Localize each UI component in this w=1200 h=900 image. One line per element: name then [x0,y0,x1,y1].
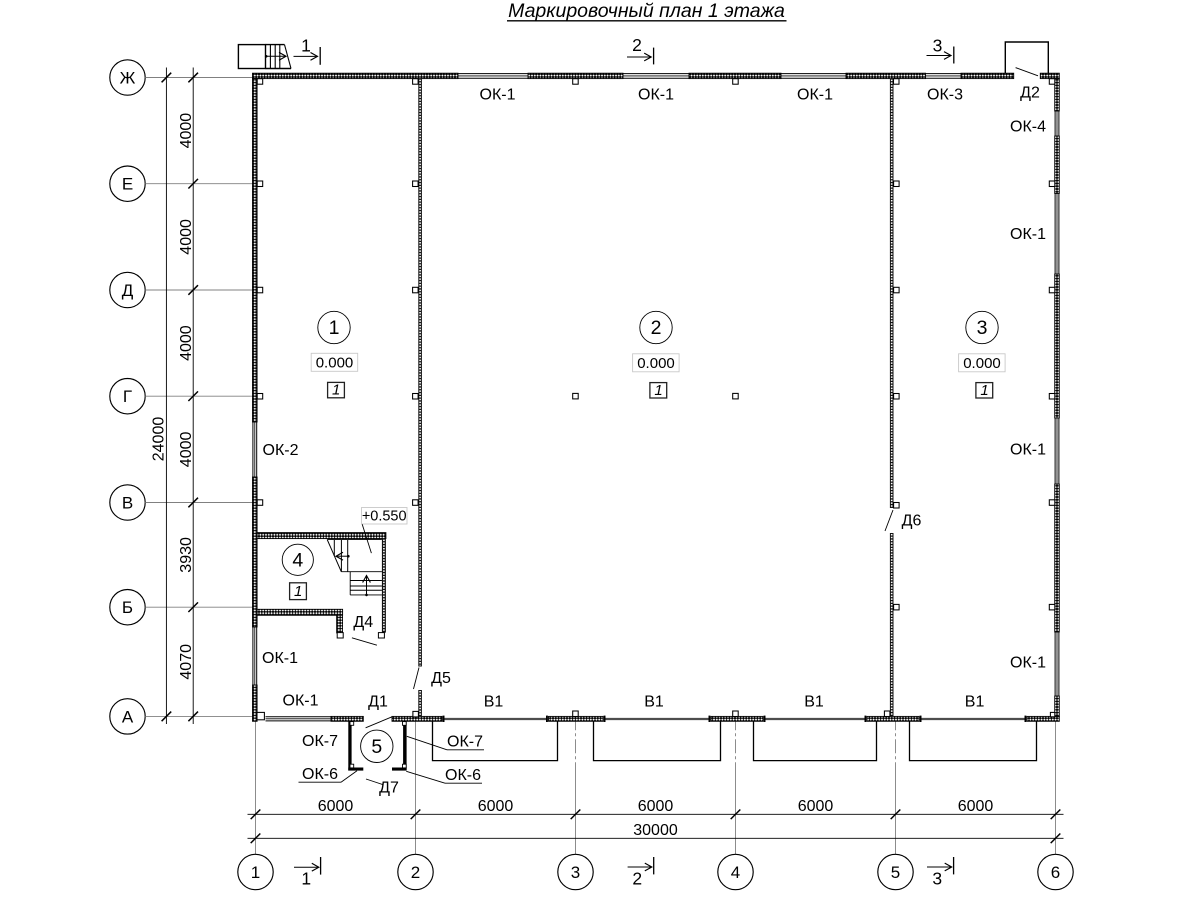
svg-text:ОК-4: ОК-4 [1010,119,1046,136]
svg-text:В1: В1 [644,694,664,711]
svg-text:1: 1 [301,36,311,56]
svg-text:Д2: Д2 [1020,85,1040,102]
svg-text:ОК-2: ОК-2 [263,442,299,459]
svg-text:3: 3 [571,863,580,882]
svg-text:ОК-7: ОК-7 [302,733,338,750]
svg-text:6000: 6000 [958,798,994,815]
svg-text:Д5: Д5 [431,670,451,687]
svg-text:ОК-1: ОК-1 [283,693,319,710]
svg-text:6000: 6000 [798,798,834,815]
svg-text:3: 3 [933,36,943,56]
svg-text:1: 1 [294,583,302,600]
svg-text:3930: 3930 [178,537,195,573]
svg-text:ОК-1: ОК-1 [1010,226,1046,243]
svg-text:ОК-1: ОК-1 [638,87,674,104]
svg-text:1: 1 [654,382,662,399]
svg-text:30000: 30000 [633,822,678,839]
svg-text:0.000: 0.000 [637,355,675,372]
svg-text:Маркировочный план 1 этажа: Маркировочный план 1 этажа [508,0,785,22]
svg-text:Б: Б [122,598,133,617]
svg-text:2: 2 [651,317,662,339]
svg-text:Д6: Д6 [902,513,922,530]
svg-text:2: 2 [632,869,642,889]
svg-text:6: 6 [1051,863,1060,882]
svg-text:0.000: 0.000 [963,355,1001,372]
svg-text:+0.550: +0.550 [362,509,407,525]
svg-text:ОК-6: ОК-6 [445,767,481,784]
svg-text:Е: Е [122,175,133,194]
svg-text:3: 3 [977,317,988,339]
svg-text:2: 2 [632,35,642,55]
svg-text:ОК-1: ОК-1 [797,87,833,104]
svg-text:5: 5 [891,863,900,882]
svg-text:В1: В1 [965,694,985,711]
svg-text:4000: 4000 [178,325,195,361]
svg-text:Г: Г [123,387,132,406]
svg-text:6000: 6000 [318,798,354,815]
svg-text:ОК-6: ОК-6 [302,766,338,783]
svg-text:Д4: Д4 [353,614,373,631]
svg-text:4000: 4000 [178,432,195,468]
svg-text:ОК-1: ОК-1 [262,650,298,667]
svg-text:ОК-7: ОК-7 [447,734,483,751]
svg-text:0.000: 0.000 [316,354,354,371]
svg-text:Ж: Ж [120,69,136,88]
svg-text:4000: 4000 [178,219,195,255]
svg-text:4070: 4070 [178,644,195,680]
svg-text:1: 1 [332,382,340,399]
svg-text:4000: 4000 [178,113,195,149]
svg-text:ОК-1: ОК-1 [1010,655,1046,672]
svg-text:Д1: Д1 [368,694,388,711]
svg-text:ОК-1: ОК-1 [480,87,516,104]
svg-text:ОК-1: ОК-1 [1010,442,1046,459]
svg-text:1: 1 [329,317,340,339]
svg-text:Д: Д [122,281,134,300]
svg-text:В: В [122,494,133,513]
svg-text:4: 4 [292,549,303,571]
svg-text:3: 3 [932,869,942,889]
svg-text:В1: В1 [804,694,824,711]
svg-text:4: 4 [731,863,740,882]
svg-text:2: 2 [411,863,420,882]
svg-text:6000: 6000 [478,798,514,815]
svg-text:В1: В1 [484,694,504,711]
svg-text:1: 1 [301,869,311,889]
svg-text:5: 5 [371,736,382,758]
svg-text:24000: 24000 [151,417,168,462]
svg-text:А: А [122,707,134,726]
svg-text:6000: 6000 [638,798,674,815]
svg-text:1: 1 [980,382,988,399]
svg-text:ОК-3: ОК-3 [927,87,963,104]
svg-text:Д7: Д7 [379,780,399,797]
svg-text:1: 1 [251,863,260,882]
